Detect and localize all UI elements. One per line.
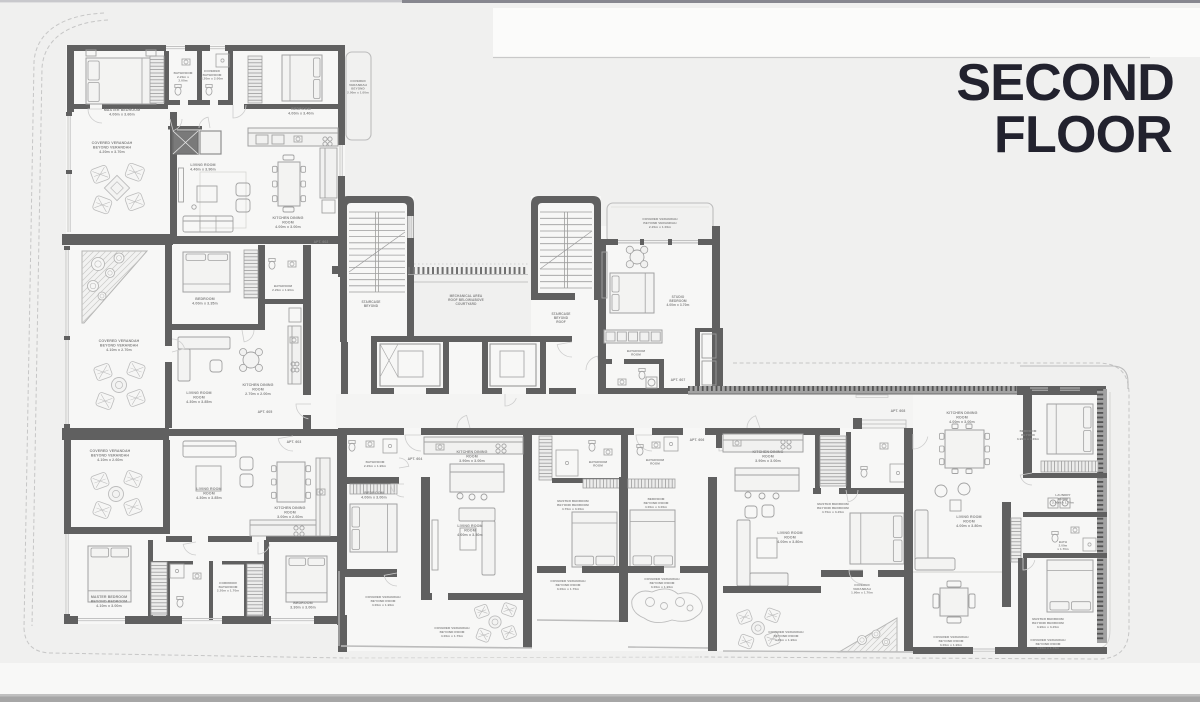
svg-text:APT. 608: APT. 608 (891, 409, 906, 413)
svg-text:MASTER BEDROOMBEYOND BEDROOM4.: MASTER BEDROOMBEYOND BEDROOM4.10m x 3.00… (91, 595, 128, 608)
svg-text:APT. 603: APT. 603 (287, 440, 302, 444)
svg-text:APT. 606: APT. 606 (690, 438, 705, 442)
svg-text:COVEREDVERANDAHBEYOND2.00m x 1: COVEREDVERANDAHBEYOND2.00m x 1.00m (347, 79, 369, 94)
svg-text:CORRIDORBATHROOM2.20m x 1.70m: CORRIDORBATHROOM2.20m x 1.70m (217, 581, 239, 593)
svg-text:STAIRCASEBEYOND: STAIRCASEBEYOND (361, 300, 380, 308)
svg-text:BATHROOM2.20m x 1.90m: BATHROOM2.20m x 1.90m (364, 460, 386, 468)
svg-text:COVEREDVERANDAH1.90m x 1.70m: COVEREDVERANDAH1.90m x 1.70m (851, 583, 873, 595)
svg-text:APT. 607: APT. 607 (671, 378, 686, 382)
svg-text:COVEREDBATHROOM2.20m x 2.00m: COVEREDBATHROOM2.20m x 2.00m (201, 69, 223, 81)
svg-text:BEDROOM3.30m x 3.00m: BEDROOM3.30m x 3.00m (290, 601, 316, 609)
svg-text:LIVING ROOM4.40m x 3.90m: LIVING ROOM4.40m x 3.90m (190, 163, 216, 171)
svg-text:BEDROOM4.00m x 3.40m: BEDROOM4.00m x 3.40m (288, 107, 314, 115)
svg-text:BATHROOM2.20m x 1.90m: BATHROOM2.20m x 1.90m (272, 284, 294, 292)
svg-text:MASTER BEDROOM4.00m x 3.60m: MASTER BEDROOM4.00m x 3.60m (104, 108, 140, 116)
svg-text:BEDROOM4.00m x 3.35m: BEDROOM4.00m x 3.35m (192, 297, 218, 305)
svg-text:APT. 602: APT. 602 (314, 240, 329, 244)
svg-text:APT. 604: APT. 604 (408, 457, 423, 461)
svg-text:BEDROOM4.00m x 3.00m: BEDROOM4.00m x 3.00m (361, 491, 387, 499)
svg-text:APT. 605: APT. 605 (258, 410, 273, 414)
